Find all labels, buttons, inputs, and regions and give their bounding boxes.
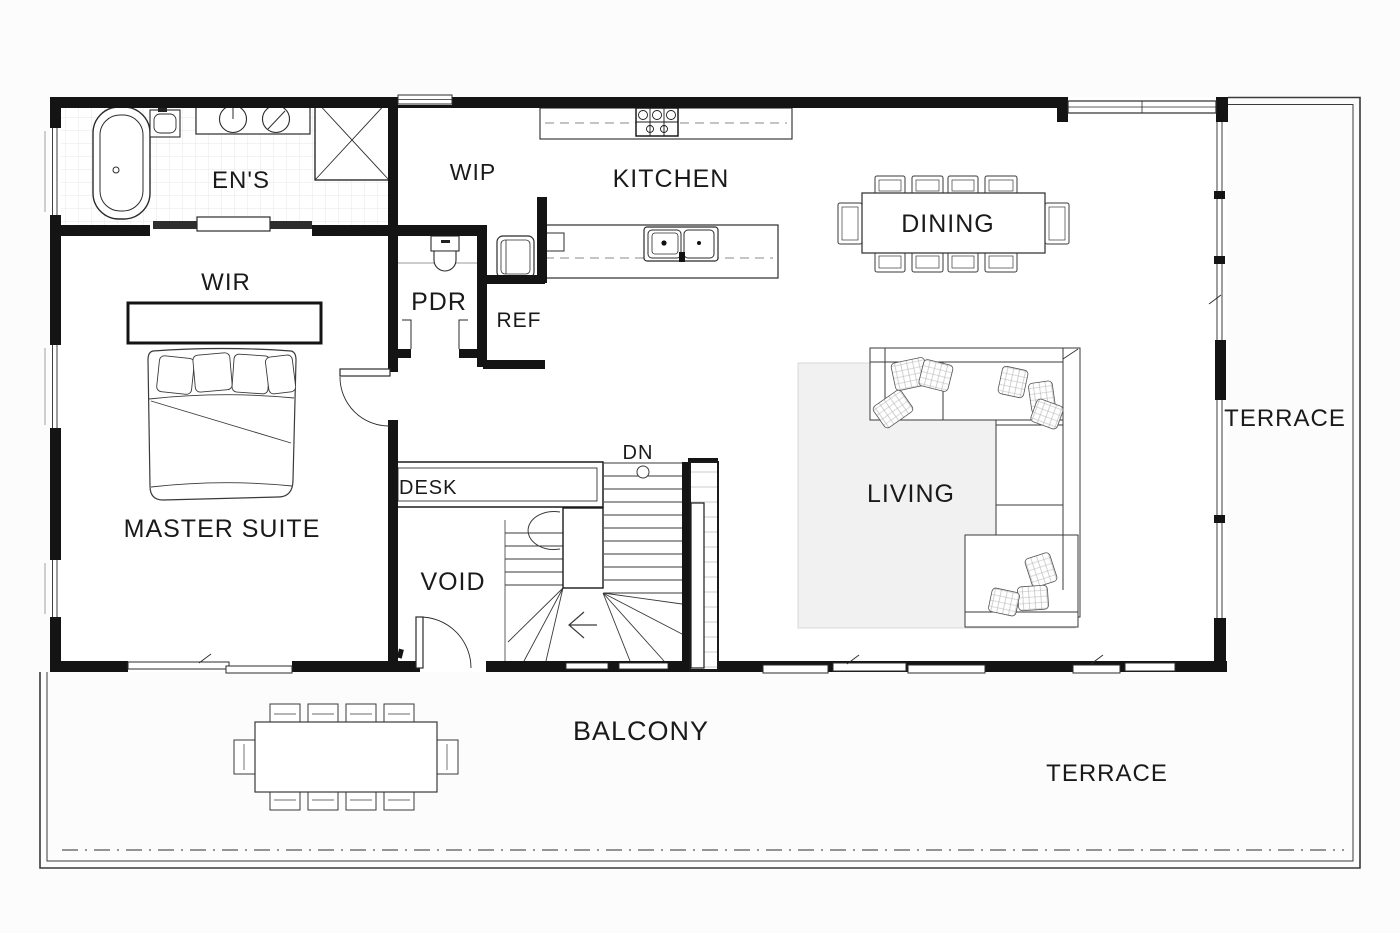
stair-screen-panel bbox=[690, 462, 718, 670]
label-ref: REF bbox=[497, 309, 542, 332]
wall-right-mid bbox=[1215, 340, 1226, 400]
floor-plan-canvas: EN'S WIR MASTER SUITE WIP PDR REF KITCHE… bbox=[0, 0, 1400, 933]
cooktop-icon bbox=[636, 108, 678, 136]
outdoor-table bbox=[255, 722, 437, 792]
bed-icon bbox=[148, 349, 296, 501]
shower-icon bbox=[315, 100, 389, 180]
label-ens: EN'S bbox=[212, 167, 270, 194]
ens-toilet-icon bbox=[150, 108, 180, 137]
wall-right-bottom bbox=[1214, 618, 1226, 672]
wall-ref-south bbox=[483, 360, 545, 369]
wall-stair-east bbox=[682, 462, 690, 672]
label-living: LIVING bbox=[867, 480, 955, 508]
wardrobe-shelf bbox=[128, 303, 321, 343]
floor-plan-drawing: EN'S WIR MASTER SUITE WIP PDR REF KITCHE… bbox=[0, 0, 1400, 933]
label-terrace-bottom: TERRACE bbox=[1046, 760, 1168, 787]
label-desk: DESK bbox=[399, 477, 457, 499]
label-master-suite: MASTER SUITE bbox=[124, 515, 321, 543]
fridge-icon bbox=[497, 236, 534, 278]
label-void: VOID bbox=[420, 568, 485, 596]
label-dining: DINING bbox=[901, 210, 995, 238]
kitchen-bench bbox=[540, 108, 792, 139]
wall-pdr-east bbox=[477, 225, 487, 367]
kitchen-island bbox=[540, 225, 778, 278]
label-terrace-right: TERRACE bbox=[1224, 405, 1346, 432]
label-wir: WIR bbox=[201, 269, 251, 296]
island-sink-icon bbox=[644, 227, 718, 262]
bathtub-icon bbox=[93, 107, 150, 219]
label-wip: WIP bbox=[450, 159, 496, 185]
wall-pdr-south-right bbox=[459, 349, 487, 358]
wall-top-right-corner bbox=[1216, 97, 1228, 122]
wall-pdr-south-left bbox=[389, 349, 411, 358]
wall-top bbox=[50, 97, 1068, 108]
label-pdr: PDR bbox=[411, 288, 467, 316]
wall-top-stub bbox=[1057, 97, 1068, 122]
label-kitchen: KITCHEN bbox=[613, 165, 730, 193]
wall-kitchen-divider bbox=[537, 197, 547, 283]
label-dn: DN bbox=[623, 442, 654, 464]
label-balcony: BALCONY bbox=[573, 716, 709, 746]
stair-newel-circle bbox=[637, 466, 649, 478]
wall-ref-north bbox=[483, 275, 545, 284]
top-right-slider bbox=[1068, 101, 1216, 113]
